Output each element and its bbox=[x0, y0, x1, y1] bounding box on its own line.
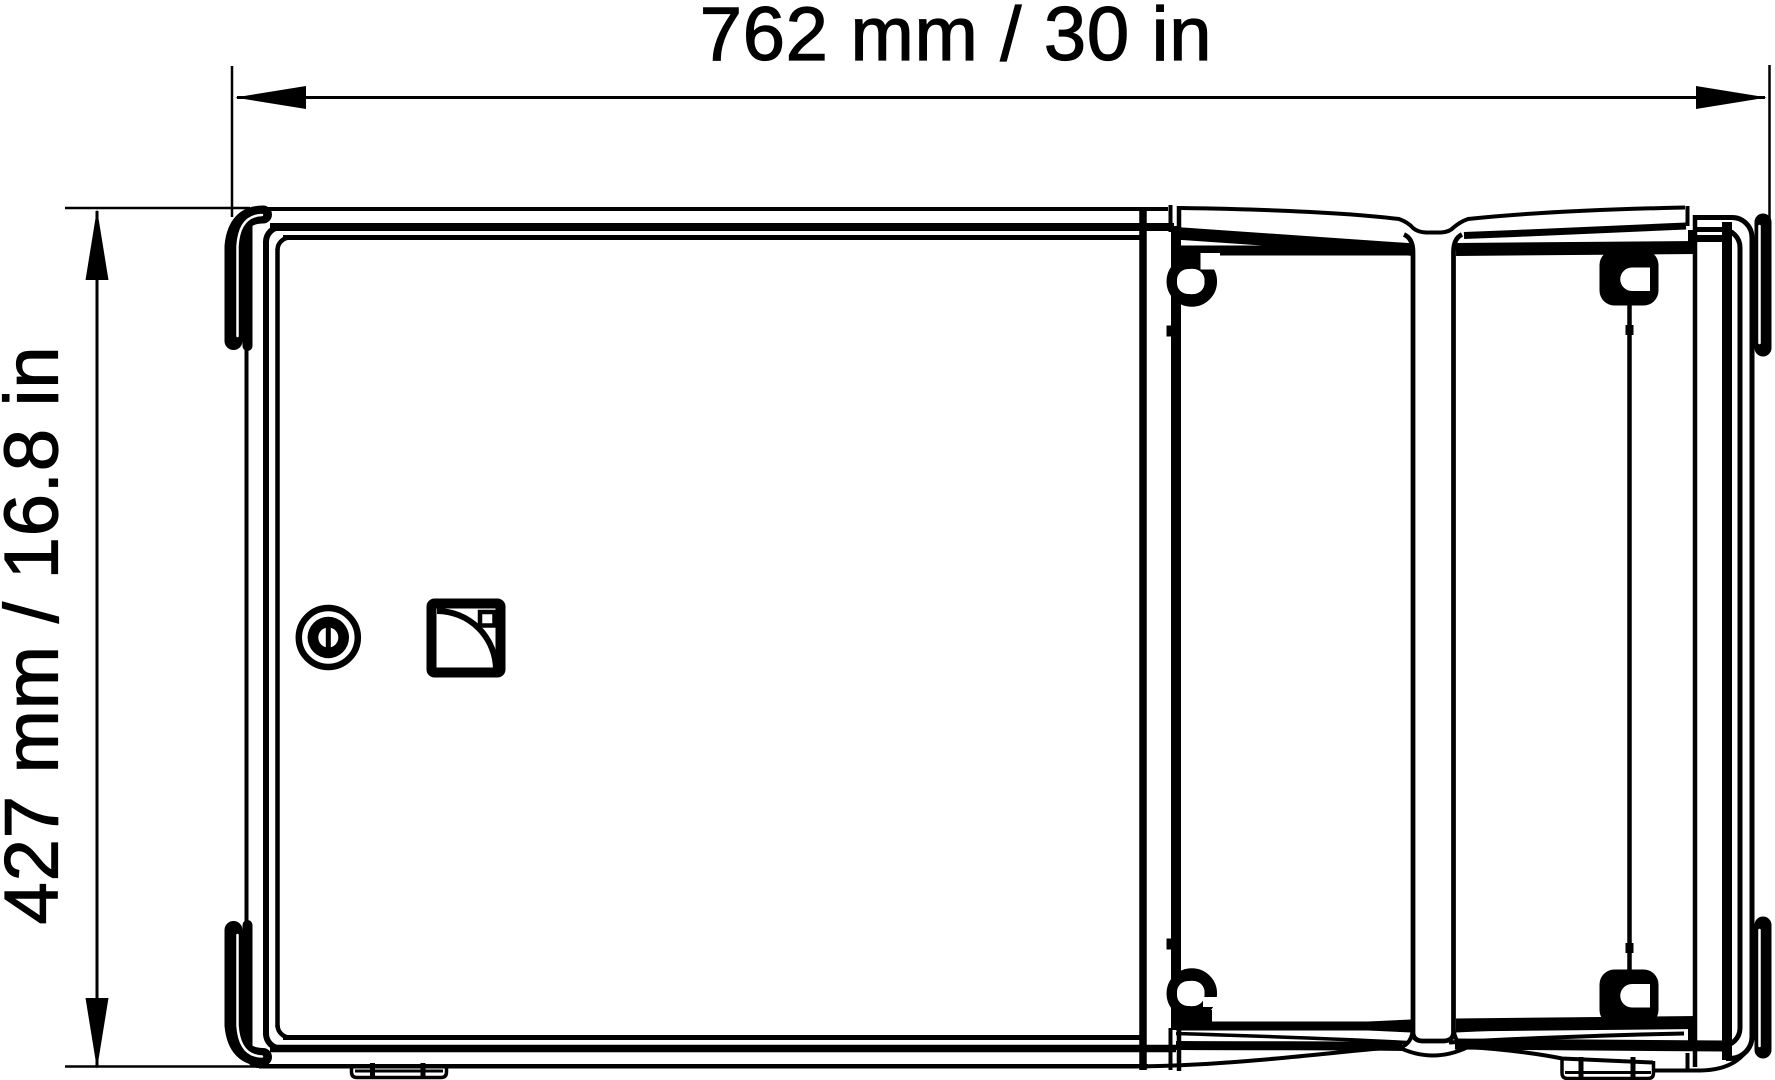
svg-text:427 mm / 16.8 in: 427 mm / 16.8 in bbox=[0, 346, 75, 925]
svg-text:762 mm / 30 in: 762 mm / 30 in bbox=[700, 0, 1212, 77]
